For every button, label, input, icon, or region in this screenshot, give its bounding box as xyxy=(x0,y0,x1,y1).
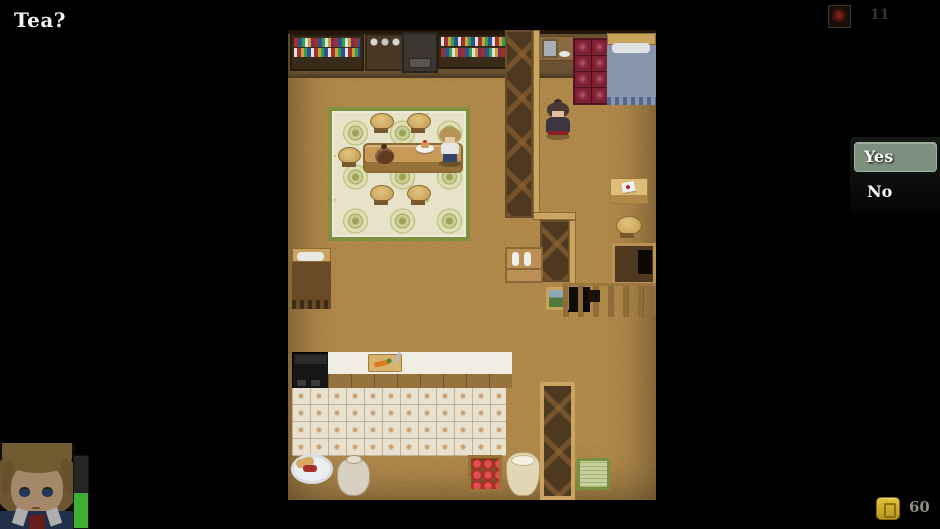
game-map[interactable] xyxy=(288,30,656,500)
gold-coin-icon xyxy=(876,497,900,520)
shelf-line xyxy=(507,268,541,270)
stool xyxy=(370,185,394,202)
choice-option-no[interactable]: No xyxy=(854,178,940,206)
item-icon-frame xyxy=(828,5,851,28)
bookshelf-right xyxy=(437,34,511,69)
meat xyxy=(303,465,317,472)
bed-left xyxy=(292,248,331,318)
bottle xyxy=(512,252,519,266)
dark-shelf-unit xyxy=(402,32,438,73)
wall-frame xyxy=(533,30,540,220)
basin xyxy=(559,51,570,57)
flour-sack xyxy=(506,452,540,496)
teapot xyxy=(375,148,394,164)
blanket-fringe xyxy=(607,97,656,105)
npc-robe-hem xyxy=(548,131,568,135)
hero-portrait xyxy=(0,443,75,529)
stool xyxy=(407,185,431,202)
kitchen-counter-top xyxy=(328,352,512,376)
item-count: 11 xyxy=(870,7,889,23)
cake-plate xyxy=(416,144,434,153)
gold-amount: 60 xyxy=(909,498,930,516)
item-counter-hud: 11 xyxy=(824,2,936,32)
stove-door xyxy=(311,380,320,386)
red-folding-screen xyxy=(573,38,609,105)
cutting-board xyxy=(368,354,402,372)
desk-stool xyxy=(616,216,642,235)
gold-counter-hud: 60 xyxy=(860,492,940,526)
portrait-dim-overlay xyxy=(0,443,75,529)
dialogue-text: Tea? xyxy=(14,8,66,32)
straw-mat xyxy=(577,458,610,490)
bottle-shelf xyxy=(505,247,543,283)
pillow xyxy=(612,43,650,53)
stool xyxy=(407,113,431,130)
game-screen: Tea? Yes No 11 60 xyxy=(0,0,940,529)
pot-lid xyxy=(346,455,362,464)
tall-door xyxy=(540,382,575,500)
choice-window: Yes No xyxy=(850,137,940,213)
player-legs xyxy=(443,154,457,162)
dish-cabinet xyxy=(365,34,404,71)
gold-coin-mark xyxy=(884,503,896,518)
mirror xyxy=(542,39,558,58)
right-partition xyxy=(612,243,656,285)
wall-frame xyxy=(569,220,576,284)
washstand xyxy=(538,36,574,61)
teapot-lid xyxy=(381,144,387,149)
bottle xyxy=(524,252,531,266)
letter-envelope xyxy=(621,181,636,193)
book-row xyxy=(441,37,507,46)
hp-bar-fill xyxy=(74,493,88,528)
letter-desk xyxy=(610,178,648,204)
tiled-floor xyxy=(292,388,506,456)
fence-gate-latch xyxy=(587,290,600,302)
choice-option-yes[interactable]: Yes xyxy=(854,142,937,172)
book-row xyxy=(441,48,507,57)
cake xyxy=(421,142,429,148)
apple-crate xyxy=(468,455,502,492)
stool xyxy=(338,147,361,164)
bookshelf-left xyxy=(290,34,364,71)
blanket-fringe xyxy=(292,300,331,309)
book-row xyxy=(294,48,360,57)
partition-wall-inner xyxy=(540,220,570,282)
stove-door xyxy=(297,380,306,386)
drawer xyxy=(409,58,431,68)
stool xyxy=(370,113,394,130)
hp-bar xyxy=(73,455,89,529)
dark-opening xyxy=(638,250,652,274)
knife xyxy=(394,352,402,364)
stove-top xyxy=(295,355,327,364)
pot xyxy=(337,458,370,496)
carrot xyxy=(374,359,390,367)
sack-opening xyxy=(511,455,535,466)
book-row xyxy=(294,38,360,47)
dishes xyxy=(369,38,400,47)
partition-wall-vertical xyxy=(505,30,533,218)
bed-top-right xyxy=(607,33,656,105)
bread-plate xyxy=(291,454,333,484)
wood-fence xyxy=(563,283,656,317)
pillow xyxy=(297,252,324,261)
red-herb-item-icon xyxy=(832,9,846,23)
player-character xyxy=(438,127,463,168)
wall-frame xyxy=(533,212,576,220)
old-woman-npc xyxy=(544,102,572,140)
kitchen-counter-base xyxy=(328,374,512,388)
stove xyxy=(292,352,330,391)
